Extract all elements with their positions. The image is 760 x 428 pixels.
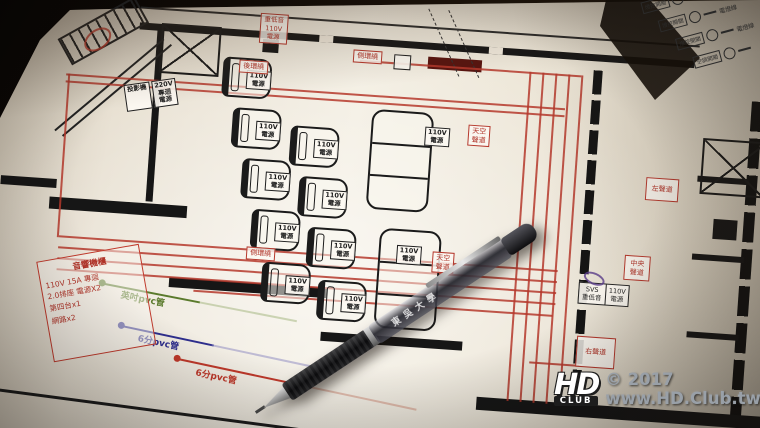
wall-opening xyxy=(319,35,333,43)
pen-tip xyxy=(255,405,266,414)
switch-label-box: 燈控開關 xyxy=(675,32,705,51)
ceiling-speaker-box xyxy=(393,54,411,70)
power-outlet-label: 110V電源 xyxy=(396,245,422,266)
wiring-line-red xyxy=(545,74,570,403)
power-outlet-label: 110V電源 xyxy=(274,222,300,243)
svs-power-cell: 110V電源 xyxy=(604,285,629,307)
svs-subwoofer-box: SVS重低音 110V電源 xyxy=(577,282,630,308)
switch-line xyxy=(721,29,734,34)
switch-note: 電燈線 xyxy=(718,2,738,15)
power-outlet-label: 110V電源 xyxy=(424,127,450,148)
projector-box: 投影機 xyxy=(123,82,152,112)
duct-xbox xyxy=(159,23,222,77)
power-outlet-text: 電源 xyxy=(249,80,268,89)
switch-circle-icon xyxy=(705,28,720,43)
center-channel-label: 中央聲道 xyxy=(623,255,651,282)
side-surround-label: 側環繞 xyxy=(246,246,276,260)
power-outlet-label: 110V電源 xyxy=(330,240,356,261)
wall-segment xyxy=(686,331,738,341)
switch-legend-row: 空調開關 xyxy=(692,41,755,69)
switch-label-box: 空調開關 xyxy=(692,50,722,69)
right-channel-label: 右聲道 xyxy=(575,336,616,369)
annotation-box: 音響機櫃 110V 15A 專迴 2.0排座 電源X2 第四台x1 網路x2 xyxy=(36,244,156,363)
left-channel-label: 左聲道 xyxy=(645,177,679,202)
switch-circle-icon xyxy=(688,10,703,25)
wiring-line-red xyxy=(529,361,579,366)
switch-circle-icon xyxy=(722,46,737,61)
power-outlet-label: 110V電源 xyxy=(313,139,339,160)
power-220-label: 220V專迴電源 xyxy=(151,78,179,108)
equipment-block xyxy=(712,219,737,241)
sky-channel-label: 天空聲道 xyxy=(467,125,490,147)
svs-cell: SVS重低音 xyxy=(579,283,606,305)
power-outlet-label: 110V電源 xyxy=(255,121,281,142)
sofa xyxy=(366,109,435,213)
hd-logo-club-text: CLUB xyxy=(554,396,598,406)
switch-line xyxy=(703,11,716,16)
watermark: HD CLUB © 2017 www.HD.Club.tw xyxy=(554,370,760,408)
projector-group: 投影機 220V專迴電源 xyxy=(123,78,178,111)
subwoofer-power-label: 重低音110V電源 xyxy=(259,13,288,44)
switch-note: 電燈線 xyxy=(735,20,755,33)
switch-label-box: 燈控開關 xyxy=(640,0,670,14)
power-outlet-label: 110V電源 xyxy=(284,275,310,296)
hd-logo: HD CLUB xyxy=(554,372,598,406)
switch-label-box: 燈控開關 xyxy=(658,14,688,33)
wall-opening xyxy=(489,47,503,55)
power-outlet-label: 110V電源 xyxy=(340,293,366,314)
power-outlet-label: 110V電源 xyxy=(321,190,347,211)
photo-scene: 110V電源 110V電源 110V電源 110V電源 110V電源 110V電… xyxy=(0,0,760,428)
wiring-line-red xyxy=(57,74,70,238)
switch-circle-icon xyxy=(670,0,685,6)
wall-segment xyxy=(0,175,56,188)
duct-xbox xyxy=(699,138,760,198)
rear-surround-label: 後環繞 xyxy=(239,59,269,73)
copyright-text: © 2017 www.HD.Club.tw xyxy=(605,370,760,408)
power-outlet-label: 110V電源 xyxy=(265,172,291,193)
switch-line xyxy=(738,47,751,52)
legend-line-green-faded xyxy=(198,301,297,322)
wall-segment xyxy=(692,253,744,263)
wall-segment xyxy=(49,197,188,219)
side-surround-label: 側環繞 xyxy=(353,49,383,63)
